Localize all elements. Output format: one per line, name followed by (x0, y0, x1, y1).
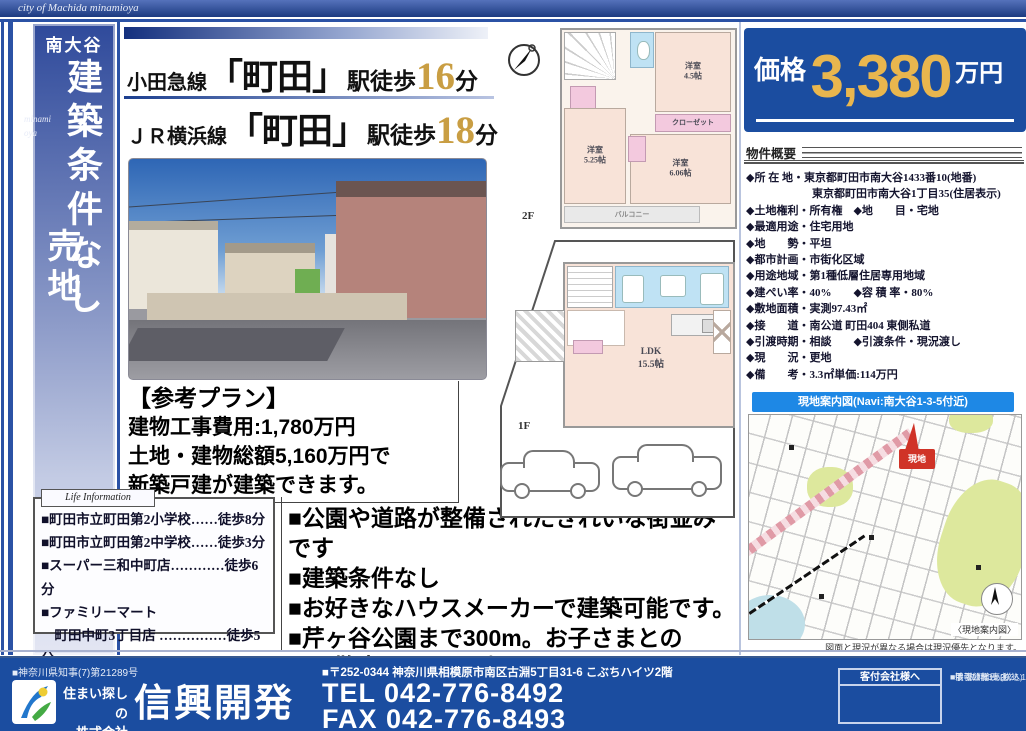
life-item: ■ファミリーマート (41, 601, 267, 624)
minutes-unit: 分 (475, 123, 498, 148)
price-value: 3,380 (810, 43, 950, 110)
features-divider (281, 497, 282, 652)
outline-item: ◆最適用途・住宅用地 (746, 219, 1026, 235)
property-photo (128, 158, 487, 380)
room-5-25: 洋室5.25帖 (564, 108, 626, 204)
walk-label: 駅徒歩 (367, 123, 436, 148)
footer: ■神奈川県知事(7)第21289号 住まい探しの 株式会社 信興開発 ■〒252… (0, 656, 1026, 731)
outline-item: ◆用途地域・第1種低層住居専用地域 (746, 268, 1026, 284)
floor-label-2f: 2F (522, 210, 534, 222)
life-item: ■町田市立町田第2中学校……徒歩3分 (41, 531, 267, 554)
outline-item: ◆引渡時期・相談 ◆引渡条件・現況渡し (746, 334, 1026, 350)
column-divider (739, 22, 741, 655)
outline-item: ◆土地権利・所有権 ◆地 目・宅地 (746, 203, 1026, 219)
walk-label: 駅徒歩 (347, 69, 416, 94)
floorplan-2f: 洋室4.5帖 クローゼット 洋室5.25帖 洋室6.06帖 バルコニー (560, 28, 737, 229)
stairs (567, 266, 613, 308)
entrance-step (573, 340, 603, 354)
life-information-label: Life Information (41, 489, 155, 507)
reference-plan-note: 【参考プラン】 建物工事費用:1,780万円 土地・建物総額5,160万円で 新… (128, 384, 458, 501)
map-compass-icon (981, 583, 1013, 615)
room-size: 4.5帖 (684, 72, 702, 81)
outline-item: ◆備 考・3.3㎡単価:114万円 (746, 367, 1026, 383)
compass-icon (506, 42, 542, 78)
life-item: ■町田市立町田第2小学校……徒歩8分 (41, 508, 267, 531)
content-bottom-rule (0, 650, 1026, 652)
map-poi (789, 445, 794, 450)
parked-car (612, 456, 722, 490)
plan-note-border (458, 381, 459, 503)
walk-minutes: 16 (416, 55, 455, 98)
sidebar-romaji-line: minami (24, 112, 51, 126)
toilet (630, 32, 654, 68)
outline-item: ◆所 在 地・東京都町田市南大谷1433番10(地番) (746, 170, 1026, 186)
parked-car (500, 462, 600, 492)
fax-number: FAX 042-776-8493 (322, 704, 566, 731)
closet: クローゼット (655, 114, 731, 132)
agent-stamp-box: 客付会社様へ (838, 668, 942, 724)
tagline-line: 株式会社 (60, 723, 128, 731)
reference-plan-line: 建物工事費用:1,780万円 (128, 414, 458, 443)
room-name: LDK (641, 347, 662, 357)
walk-minutes: 18 (436, 109, 475, 152)
note-publish-date: ■情報公開日:2025.12.22 (950, 666, 1026, 688)
map-poi (819, 594, 824, 599)
balcony: バルコニー (564, 206, 700, 223)
map-title: 現地案内図(Navi:南大谷1-3-5付近) (752, 392, 1014, 412)
balcony-label: バルコニー (565, 210, 699, 219)
sidebar-pinstripe (1, 22, 4, 655)
area-map: 現地 〈現地案内図〉 (748, 414, 1022, 640)
map-poi (869, 535, 874, 540)
outline-item: ◆接 道・南公道 町田404 東側私道 (746, 318, 1026, 334)
company-name: 信興開発 (134, 672, 294, 727)
photo-road-shadow (128, 328, 345, 361)
map-caption: 図面と現況が異なる場合は現況優先となります。 (760, 641, 1022, 654)
reference-plan-line: 土地・建物総額5,160万円で (128, 443, 458, 472)
price-unit: 万円 (955, 60, 1003, 87)
feature-item: ■芹ヶ谷公園まで300m。お子さまとの (288, 624, 738, 654)
reference-plan-title: 【参考プラン】 (128, 384, 458, 414)
access-divider (124, 96, 494, 99)
feature-item: ■お好きなハウスメーカーで建築可能です。 (288, 594, 738, 624)
room-size: 5.25帖 (584, 156, 606, 165)
price-box: 価格 3,380 万円 (744, 28, 1026, 132)
rail-name: ＪＲ横浜線 (127, 126, 227, 148)
map-site-marker: 現地 (899, 449, 935, 469)
outline-item: ◆現 況・更地 (746, 350, 1026, 366)
entrance-porch (515, 310, 565, 362)
top-banner-rule (0, 19, 1026, 22)
room-size: 6.06帖 (670, 169, 692, 178)
outline-item: ◆建ぺい率・40% ◆容 積 率・80% (746, 285, 1026, 301)
ldk-label: LDK 15.5帖 (611, 346, 691, 372)
license-number: ■神奈川県知事(7)第21289号 (12, 664, 138, 679)
sidebar-romaji-line: oya (24, 126, 51, 140)
room-size: 15.5帖 (638, 360, 664, 370)
outline-item: ◆敷地面積・実測97.43㎡ (746, 301, 1026, 317)
minutes-unit: 分 (455, 69, 478, 94)
map-corner-label: 〈現地案内図〉 (951, 623, 1018, 636)
price-label: 価格 (754, 55, 806, 85)
map-poi (976, 565, 981, 570)
room-name: 洋室 (673, 159, 689, 168)
floor-label-1f: 1F (518, 420, 530, 432)
life-item: ■スーパー三和中町店…………徒歩6分 (41, 554, 267, 600)
outline-item: ◆都市計画・市街化区域 (746, 252, 1026, 268)
sidebar-pinstripe (8, 22, 13, 655)
sidebar-romaji: minami oya (24, 112, 51, 141)
outline-header-lines (802, 147, 1022, 158)
access-gradient-bar (124, 27, 488, 41)
stairs (564, 32, 616, 80)
flyer-page: city of Machida minamioya 南大谷 建築条件なし 売地 … (0, 0, 1026, 731)
sidebar-area-name: 南大谷 (33, 31, 115, 56)
station-name: 「町田」 (207, 57, 347, 97)
feature-item: ■建築条件なし (288, 564, 738, 594)
closet-label: クローゼット (656, 118, 730, 127)
outline-item: 東京都町田市南大谷1丁目35(住居表示) (746, 186, 1026, 202)
pantry-storage (713, 310, 731, 354)
room-name: 洋室 (685, 62, 701, 71)
top-banner-title: city of Machida minamioya (0, 0, 1026, 17)
access-line-jr: ＪＲ横浜線「町田」駅徒歩18分 (127, 102, 493, 154)
company-logo (12, 680, 56, 724)
bathroom-washroom (615, 266, 729, 308)
life-information-list: ■町田市立町田第2小学校……徒歩8分 ■町田市立町田第2中学校……徒歩3分 ■ス… (41, 508, 267, 671)
outline-item: ◆地 勢・平坦 (746, 236, 1026, 252)
tagline-line: 住まい探しの (60, 684, 128, 723)
storage (628, 136, 646, 162)
agent-stamp-box-title: 客付会社様へ (840, 670, 940, 686)
rail-name: 小田急線 (127, 72, 207, 94)
sidebar-sale-type: 売地 (36, 228, 85, 308)
room-name: 洋室 (587, 146, 603, 155)
station-name: 「町田」 (227, 111, 367, 151)
outline-rule (744, 160, 1024, 164)
company-tagline: 住まい探しの 株式会社 (60, 684, 128, 731)
outline-list: ◆所 在 地・東京都町田市南大谷1433番10(地番) 東京都町田市南大谷1丁目… (746, 170, 1026, 383)
price-underline (756, 119, 1014, 122)
floorplan-1f: LDK 15.5帖 (563, 262, 735, 428)
room-4-5: 洋室4.5帖 (655, 32, 731, 112)
access-line-odakyu: 小田急線「町田」駅徒歩16分 (127, 48, 493, 100)
